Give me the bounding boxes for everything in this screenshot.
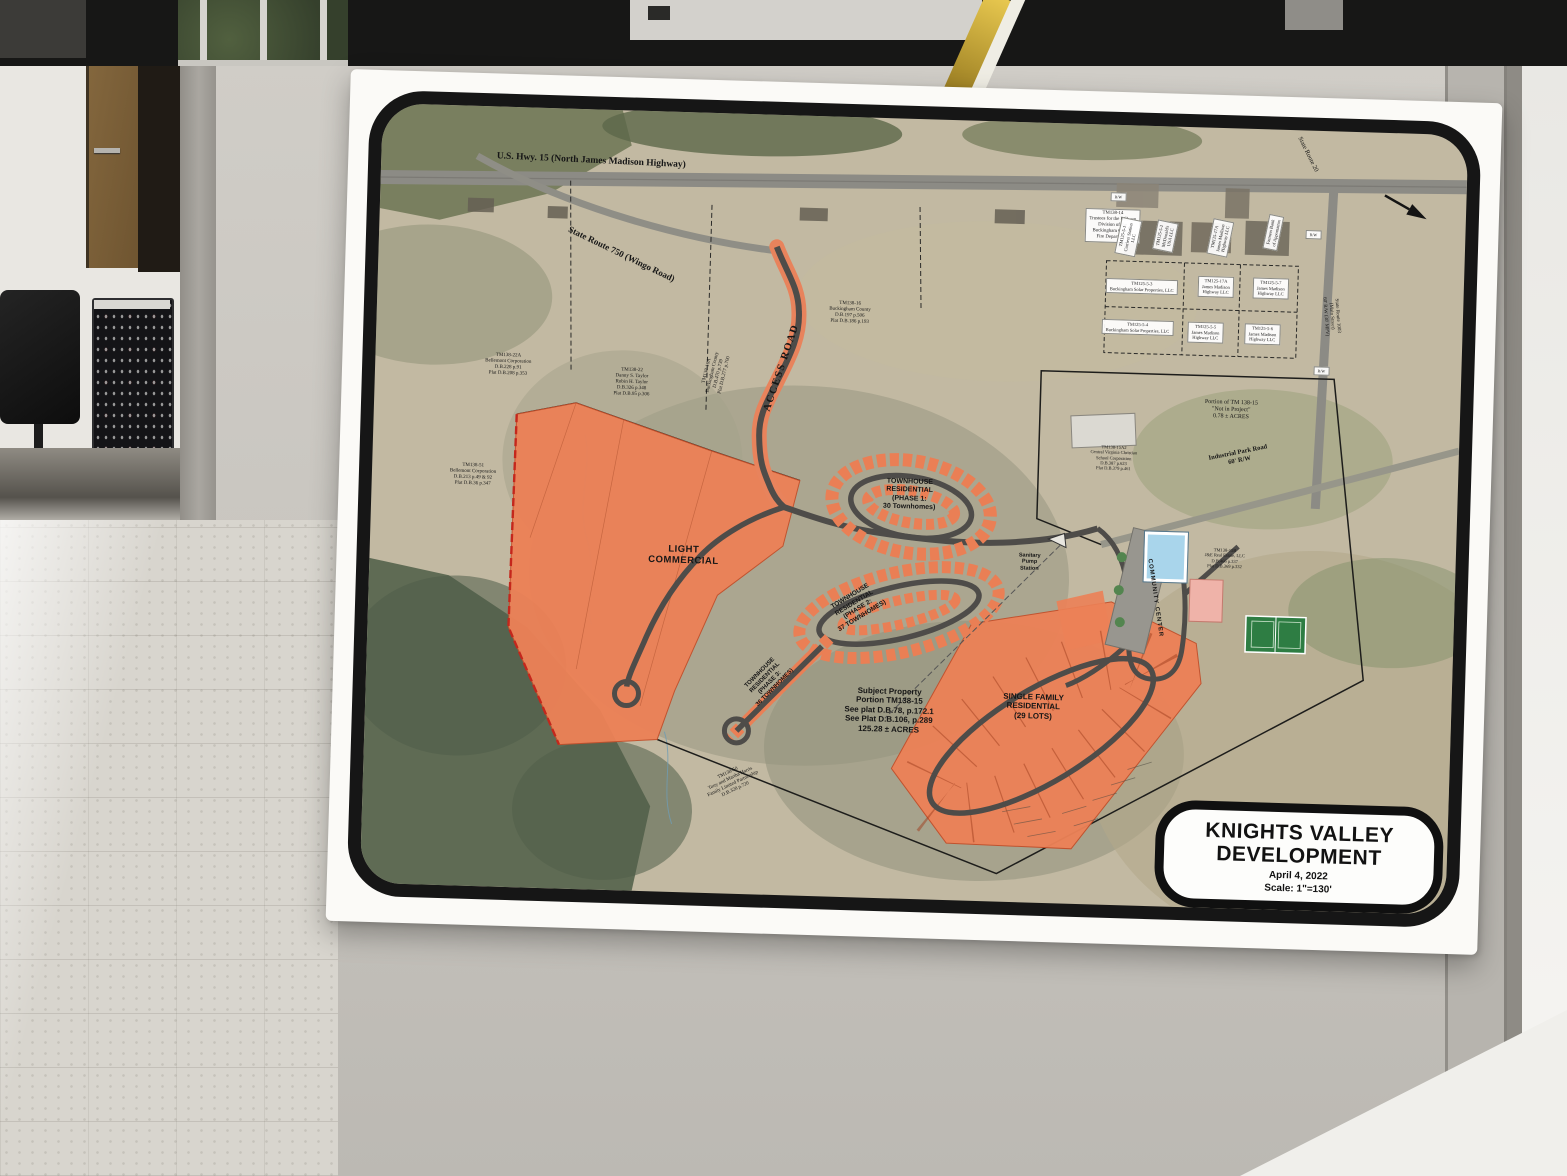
door-handle <box>94 148 120 153</box>
map-label-community-center: COMMUNITY CENTER <box>1145 558 1163 637</box>
map-title-block: KNIGHTS VALLEY DEVELOPMENT April 4, 2022… <box>1153 799 1444 915</box>
site-plan-paper: U.S. Hwy. 15 (North James Madison Highwa… <box>326 69 1503 955</box>
map-label-tm138-22a: TM138-22A Bellemont Corporation D.B.228 … <box>485 352 532 377</box>
map-label-townhouse-phase-1: TOWNHOUSE RESIDENTIAL (PHASE 1: 30 Townh… <box>883 478 936 513</box>
photo-of-site-plan-board: U.S. Hwy. 15 (North James Madison Highwa… <box>0 0 1567 1176</box>
map-label-tm125-5-7: TM125-5-7 James Madison Highway LLC <box>1253 278 1289 300</box>
map-label-not-in-project: Portion of TM 138-15 "Not in Project" 0.… <box>1204 399 1258 422</box>
speaker <box>0 290 80 424</box>
stage-edge-shadow <box>0 448 180 530</box>
map-label-tm125-5-5: TM125-5-5 James Madison Highway LLC <box>1187 322 1223 344</box>
map-label-subject-property: Subject Property Portion TM138-15 See pl… <box>844 685 935 735</box>
audio-mixer-top <box>94 300 170 309</box>
window-mullion <box>200 0 207 60</box>
map-label-industrial-park-road: Industrial Park Road 60' R/W <box>1208 443 1269 470</box>
map-label-townhouse-phase-3: TOWNHOUSE RESIDENTIAL (PHASE 3: 36 TOWNH… <box>740 653 796 709</box>
map-label-state-route-1003: State Route 1003 (Main Street) 60' R/W (… <box>1321 296 1342 336</box>
window-mullion <box>260 0 267 60</box>
window-sill <box>178 60 348 66</box>
ceiling-panel <box>1285 0 1343 30</box>
map-labels: U.S. Hwy. 15 (North James Madison Highwa… <box>360 103 1469 915</box>
map-label-rw-1: R/W <box>1111 192 1127 201</box>
partition-right-edge <box>1507 56 1522 1176</box>
map-label-farmers-bank: Farmers Bank of Appomattox <box>1262 214 1284 251</box>
map-label-light-commercial: LIGHT COMMERCIAL <box>648 543 719 567</box>
map-label-access-road: ACCESS ROAD <box>762 323 803 414</box>
map-label-us-hwy-15: U.S. Hwy. 15 (North James Madison Highwa… <box>496 151 686 171</box>
map-label-state-route-750: State Route 750 (Wingo Road) <box>567 224 677 284</box>
map-label-tm125-5-4: TM125-5-4 Buckingham Solar Properties, L… <box>1101 319 1173 336</box>
window-mullion <box>320 0 327 60</box>
map-label-rw-3: R/W <box>1313 366 1329 375</box>
window-with-trees <box>178 0 348 66</box>
site-plan-map: U.S. Hwy. 15 (North James Madison Highwa… <box>346 90 1481 929</box>
map-label-state-route-20: State Route 20 <box>1296 136 1320 174</box>
map-label-rw-2: R/W <box>1305 230 1321 239</box>
map-label-tm138-16: TM138-16 Buckingham County D.B.197 p.506… <box>829 301 871 326</box>
map-label-tm138-50: TM138-50 Tony and Martha Harris Family L… <box>702 759 762 804</box>
map-label-tm125-17a-north: TM125-17A James Madison Highway LLC <box>1206 218 1234 257</box>
map-label-sanitary-pump-station: Sanitary Pump Station <box>1018 552 1040 572</box>
floor-left <box>0 520 338 1176</box>
ceiling-panel <box>0 0 86 58</box>
map-label-tm125-5-6: TM125-5-6 James Madison Highway LLC <box>1244 323 1280 345</box>
map-label-tm125-5-2: TM125-5-2 McDonald's USA LLC <box>1152 220 1178 253</box>
map-label-tm125-17a: TM125-17A James Madison Highway LLC <box>1198 276 1234 298</box>
ceiling-white-panel <box>630 0 982 40</box>
wall-right <box>1522 66 1567 1176</box>
map-label-tm125-5-3: TM125-5-3 Buckingham Solar Properties, L… <box>1106 278 1178 295</box>
map-label-school: TM138-15A2 Central Virginia Christian Sc… <box>1090 444 1137 472</box>
map-label-single-family: SINGLE FAMILY RESIDENTIAL (29 LOTS) <box>1003 692 1064 722</box>
map-label-townhouse-phase-2: TOWNHOUSE RESIDENTIAL (PHASE 2: 37 TOWNH… <box>825 579 888 634</box>
map-label-tm138-16a: TM138-16A Buckingham County D.B.470 p.73… <box>700 350 733 396</box>
audio-mixer-rack <box>92 298 174 466</box>
ceiling-vent <box>648 6 670 20</box>
map-label-tm138-51: TM138-51 Bellemont Corporation D.B.213 p… <box>449 462 496 487</box>
map-label-tm138-22: TM138-22 Danny S. Taylor Robin H. Taylor… <box>613 367 650 398</box>
map-label-tm138-15b: TM138-15B J&E Real Estate, LLC D.B.466 p… <box>1204 547 1245 569</box>
